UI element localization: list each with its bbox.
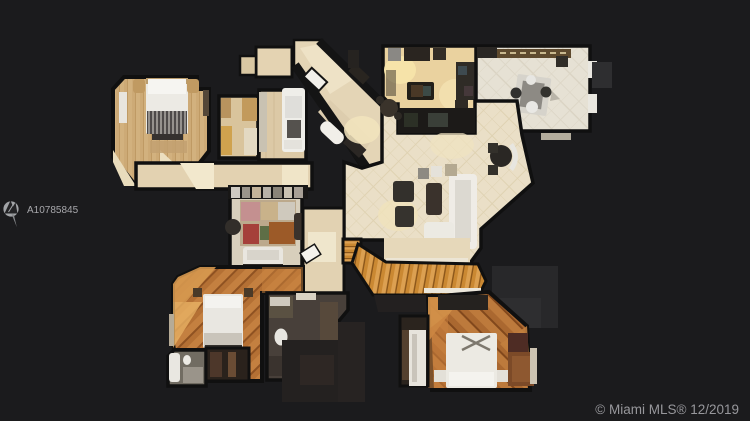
svg-text:© Miami MLS® 12/2019: © Miami MLS® 12/2019 [595,402,739,417]
svg-text:A10785845: A10785845 [27,205,79,216]
